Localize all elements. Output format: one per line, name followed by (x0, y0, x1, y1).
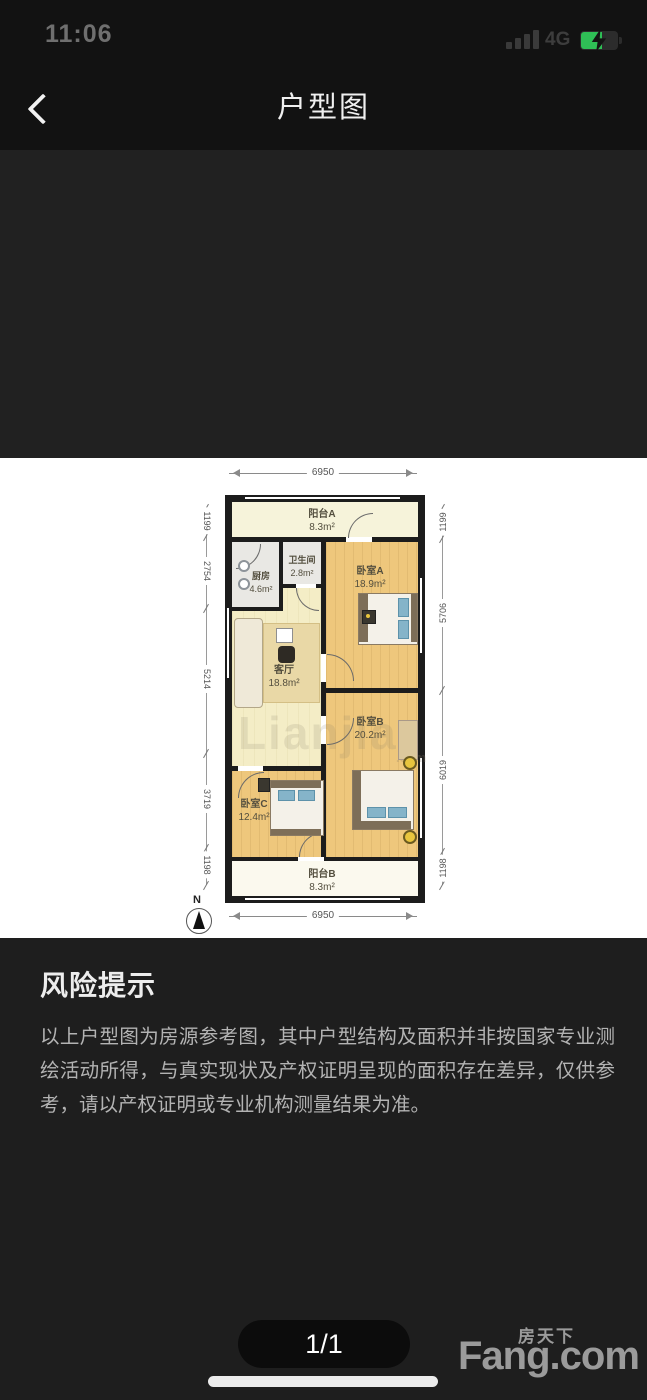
dim-right-1: 5706 (438, 599, 448, 627)
risk-title: 风险提示 (40, 964, 156, 1004)
tv-icon (276, 628, 293, 643)
page-title: 户型图 (0, 84, 647, 126)
dim-right-2: 6019 (438, 756, 448, 784)
bed-icon-bedroom-b (352, 770, 414, 830)
stove-burner-icon (238, 560, 250, 572)
room-label-living: 客厅18.8m² (268, 664, 299, 690)
dim-left-4: 1198 (202, 851, 212, 878)
wall-outer-left (225, 495, 232, 903)
dimension-top-value: 6950 (307, 467, 339, 478)
page-indicator: 1/1 (238, 1320, 410, 1368)
stove-burner-icon (238, 578, 250, 590)
wall-kitchen-right (279, 542, 283, 610)
screen: 11:06 4G 户型图 6950 (0, 0, 647, 1400)
dim-left-2: 5214 (202, 665, 212, 693)
window-right-b (420, 758, 423, 838)
lamp-icon (403, 756, 417, 770)
network-type-label: 4G (545, 29, 570, 51)
floor-plan-image[interactable]: 6950 (0, 458, 647, 938)
window-left (227, 608, 230, 678)
risk-body: 以上户型图为房源参考图，其中户型结构及面积并非按国家专业测绘活动所得，与真实现状… (40, 1020, 615, 1122)
chair-icon (278, 646, 295, 663)
dimension-line-top: 6950 (229, 473, 417, 474)
wardrobe-icon (398, 720, 418, 760)
dimension-line-bottom: 6950 (229, 916, 417, 917)
window-right-a (420, 578, 423, 653)
dimension-bottom-value: 6950 (307, 910, 339, 921)
window-bottom (245, 898, 400, 901)
compass-north-label: N (193, 894, 201, 906)
fang-logo-en: Fang.com (458, 1334, 639, 1379)
bed-icon-bedroom-c (270, 780, 324, 836)
window-top (245, 497, 400, 500)
wall-kitchen-bottom (232, 607, 283, 611)
home-indicator[interactable] (208, 1376, 438, 1387)
room-label-balcony-b: 阳台B8.3m² (308, 868, 335, 894)
lamp-icon (403, 830, 417, 844)
room-label-bedroom-a: 卧室A18.9m² (354, 565, 385, 591)
room-label-bathroom: 卫生间2.8m² (288, 554, 315, 580)
charging-bolt-icon (590, 29, 608, 52)
room-label-kitchen: 厨房4.6m² (249, 570, 272, 596)
nightstand-icon (258, 778, 270, 792)
dim-right-0: 1199 (438, 508, 448, 535)
room-label-bedroom-b: 卧室B20.2m² (354, 716, 385, 742)
nightstand-icon (362, 610, 376, 624)
wall-balcony-b (232, 857, 418, 861)
dim-left-3: 3719 (202, 785, 212, 813)
image-letterbox-top (0, 150, 647, 458)
dim-right-3: 1198 (438, 854, 448, 881)
room-label-bedroom-c: 卧室C12.4m² (238, 798, 269, 824)
fang-logo: 房天下 Fang.com (458, 1322, 647, 1392)
nav-bar: 户型图 (0, 62, 647, 150)
dim-left-1: 2754 (202, 557, 212, 585)
dim-left-0: 1199 (202, 507, 212, 534)
sofa-icon (234, 618, 263, 708)
room-label-balcony-a: 阳台A8.3m² (308, 508, 335, 534)
battery-cap (619, 37, 622, 44)
wall-outer-right (418, 495, 425, 903)
status-time: 11:06 (45, 20, 113, 49)
status-bar: 11:06 4G (0, 0, 647, 62)
wall-bedroom-ab (326, 688, 418, 693)
